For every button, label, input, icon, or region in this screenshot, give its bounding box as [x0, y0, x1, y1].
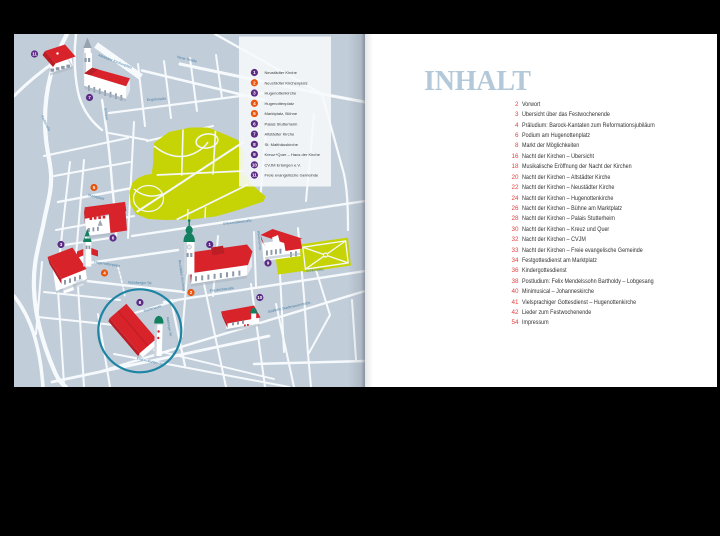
svg-text:3: 3	[60, 242, 63, 247]
svg-text:5: 5	[253, 111, 256, 116]
svg-text:6: 6	[253, 121, 256, 126]
svg-text:Kreuz+Quer – Haus der Kirche: Kreuz+Quer – Haus der Kirche	[265, 152, 321, 157]
svg-text:8: 8	[139, 300, 142, 305]
svg-text:Palais Stutterheim: Palais Stutterheim	[265, 121, 298, 126]
svg-text:Neustädter Kirchenplatz: Neustädter Kirchenplatz	[265, 80, 308, 85]
svg-text:CVJM Erlangen e.V.: CVJM Erlangen e.V.	[265, 162, 301, 167]
svg-text:6: 6	[112, 236, 115, 241]
svg-text:4: 4	[103, 271, 106, 276]
svg-text:Neustädter Kirche: Neustädter Kirche	[265, 70, 298, 75]
svg-text:Marktplatz, Bühne: Marktplatz, Bühne	[265, 111, 298, 116]
svg-text:9: 9	[267, 261, 270, 266]
svg-text:2: 2	[190, 290, 193, 295]
svg-text:7: 7	[88, 95, 91, 100]
svg-text:5: 5	[93, 185, 96, 190]
svg-text:Hugenottenplatz: Hugenottenplatz	[265, 101, 294, 106]
svg-text:11: 11	[252, 173, 257, 178]
svg-text:3: 3	[253, 91, 256, 96]
svg-text:1: 1	[208, 242, 211, 247]
svg-text:St. Matthäuskirche: St. Matthäuskirche	[265, 142, 299, 147]
svg-text:10: 10	[252, 162, 258, 167]
svg-text:Freie evangelische Gemeinde: Freie evangelische Gemeinde	[265, 173, 320, 178]
svg-text:Hugenottenkirche: Hugenottenkirche	[265, 91, 297, 96]
svg-text:8: 8	[253, 142, 256, 147]
svg-text:4: 4	[253, 101, 256, 106]
svg-text:7: 7	[253, 132, 256, 137]
svg-text:11: 11	[32, 52, 37, 57]
svg-text:10: 10	[257, 295, 263, 300]
svg-text:9: 9	[253, 152, 256, 157]
svg-text:1: 1	[253, 70, 256, 75]
svg-text:2: 2	[253, 80, 256, 85]
svg-text:Altstädter Kirche: Altstädter Kirche	[265, 132, 295, 137]
